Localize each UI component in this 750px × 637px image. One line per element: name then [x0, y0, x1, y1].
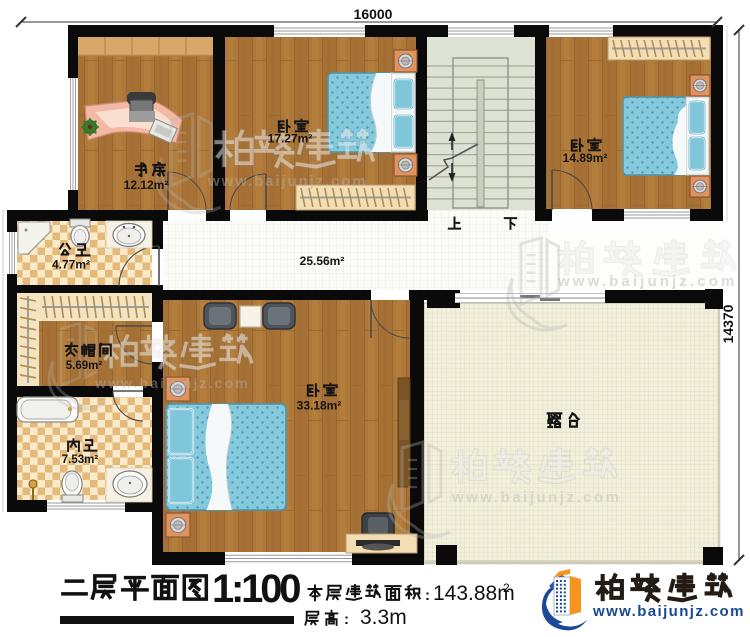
svg-text:3.3m: 3.3m	[360, 606, 407, 629]
svg-text:33.18m²: 33.18m²	[297, 399, 342, 413]
svg-text:14370: 14370	[720, 304, 736, 343]
svg-text:www.baijunjz.com: www.baijunjz.com	[592, 603, 745, 620]
svg-text::: :	[344, 611, 349, 628]
svg-text:25.56m²: 25.56m²	[300, 254, 345, 268]
svg-text:www.baijunjz.com: www.baijunjz.com	[451, 489, 621, 506]
svg-text:www.baijunjz.com: www.baijunjz.com	[94, 375, 250, 391]
svg-text:12.12m²: 12.12m²	[124, 178, 169, 192]
svg-text:5.69m²: 5.69m²	[66, 360, 103, 372]
svg-text:16000: 16000	[354, 6, 393, 22]
svg-text:17.27m²: 17.27m²	[268, 132, 313, 146]
svg-text:4.77m²: 4.77m²	[52, 258, 90, 272]
svg-text:1:100: 1:100	[212, 567, 300, 611]
svg-text:www.baijunjz.com: www.baijunjz.com	[207, 173, 367, 190]
svg-text:7.53m²: 7.53m²	[62, 454, 99, 466]
svg-text:14.89m²: 14.89m²	[563, 151, 608, 165]
svg-text:2: 2	[503, 581, 510, 595]
svg-text::: :	[425, 587, 430, 604]
svg-text:www.baijunjz.com: www.baijunjz.com	[557, 273, 737, 290]
